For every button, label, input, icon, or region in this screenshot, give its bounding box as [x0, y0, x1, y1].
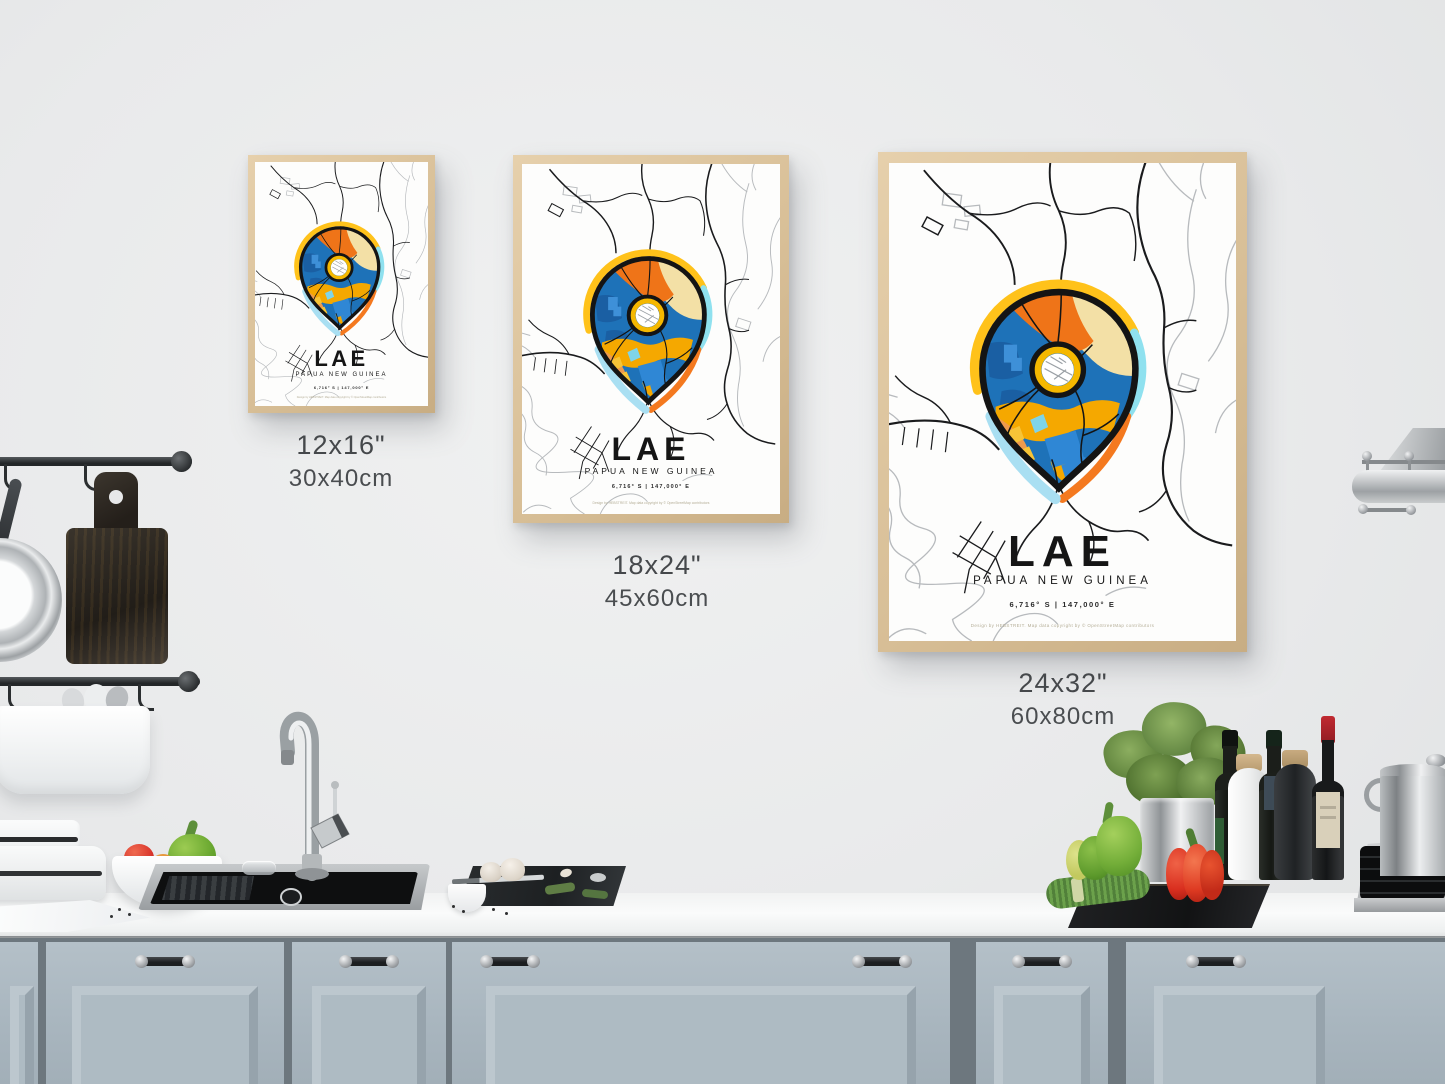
wine-label-line — [1320, 806, 1336, 809]
range-hood — [1352, 428, 1445, 520]
handle-end — [182, 955, 195, 968]
garlic-bulb — [480, 862, 502, 882]
peppercorn — [118, 908, 121, 911]
board-hole — [109, 490, 123, 504]
peppercorn — [492, 908, 495, 911]
door-panel — [486, 986, 916, 1084]
rail-ball — [1362, 451, 1372, 461]
door-panel — [994, 986, 1090, 1084]
poster-title: LAE — [889, 527, 1236, 577]
rail-ball — [1404, 451, 1414, 461]
rail-finial — [178, 671, 199, 692]
size-cm: 30x40cm — [251, 465, 431, 493]
slate-board-hole — [590, 873, 606, 882]
cabinet-handle — [137, 954, 193, 970]
rail-ball — [1406, 505, 1416, 515]
peppercorn — [128, 913, 131, 916]
garlic-bulb — [500, 858, 525, 881]
poster-coordinates: 6,716° S | 147,000° E — [255, 385, 428, 390]
size-cm: 45x60cm — [567, 585, 747, 613]
wine-label — [1316, 792, 1340, 848]
board-body — [66, 528, 168, 664]
frying-pan — [0, 538, 62, 662]
wine-bottle — [1310, 716, 1346, 880]
rail-finial — [171, 451, 192, 472]
hood-rail-lower — [1364, 508, 1412, 512]
poster-title: LAE — [255, 346, 428, 372]
handle-end — [480, 955, 493, 968]
handle-end — [1233, 955, 1246, 968]
pot-body — [1380, 776, 1445, 876]
poster-credit: Design by HEBSTREIT. Map data copyright … — [889, 623, 1236, 628]
door-panel — [1154, 986, 1325, 1084]
handle-end — [1059, 955, 1072, 968]
cabinet-handle — [341, 954, 397, 970]
soap-dish — [242, 861, 276, 875]
poster-subtitle: PAPUA NEW GUINEA — [255, 372, 428, 378]
handle-end — [1186, 955, 1199, 968]
poster-subtitle: PAPUA NEW GUINEA — [889, 575, 1236, 587]
size-inches: 12x16" — [251, 430, 431, 461]
hood-band — [1352, 470, 1445, 503]
green-pepper — [1096, 816, 1142, 876]
peppercorn — [505, 912, 508, 915]
sink-drainboard — [162, 876, 254, 900]
peppercorn — [110, 915, 113, 918]
poster-credit: Design by HEBSTREIT. Map data copyright … — [255, 396, 428, 399]
hob-front-edge — [1354, 898, 1445, 912]
poster-coordinates: 6,716° S | 147,000° E — [889, 600, 1236, 609]
poster-frame-18x24: LAE PAPUA NEW GUINEA 6,716° S | 147,000°… — [513, 155, 789, 523]
hood-rail — [1362, 460, 1445, 464]
door-panel — [72, 986, 258, 1084]
handle-end — [386, 955, 399, 968]
peppercorn — [462, 910, 465, 913]
poster-title: LAE — [522, 431, 780, 468]
poster-print-24x32: LAE PAPUA NEW GUINEA 6,716° S | 147,000°… — [889, 163, 1236, 641]
poster-print-18x24: LAE PAPUA NEW GUINEA 6,716° S | 147,000°… — [522, 164, 780, 514]
cabinet-door — [1126, 942, 1445, 1084]
cabinet-handle — [854, 954, 910, 970]
rail-ball — [1358, 504, 1368, 514]
poster-subtitle: PAPUA NEW GUINEA — [522, 466, 780, 476]
poster-print-12x16: LAE PAPUA NEW GUINEA 6,716° S | 147,000°… — [255, 162, 428, 406]
poster-coordinates: 6,716° S | 147,000° E — [522, 484, 780, 490]
handle-end — [1012, 955, 1025, 968]
faucet — [272, 686, 356, 884]
pepper-lobe — [1200, 850, 1224, 900]
poster-credit: Design by HEBSTREIT. Map data copyright … — [522, 501, 780, 505]
cooking-pot — [1380, 742, 1445, 876]
poster-frame-12x16: LAE PAPUA NEW GUINEA 6,716° S | 147,000°… — [248, 155, 435, 413]
cabinet-door — [0, 942, 38, 1084]
handle-end — [339, 955, 352, 968]
utensil-holder — [0, 706, 150, 794]
cabinet-handle — [1188, 954, 1244, 970]
handle-end — [527, 955, 540, 968]
wine-label-line — [1320, 816, 1336, 819]
peppercorn — [452, 905, 455, 908]
handle-end — [852, 955, 865, 968]
red-pepper — [1166, 842, 1222, 902]
handle-end — [135, 955, 148, 968]
size-inches: 18x24" — [567, 550, 747, 581]
kitchen-mockup-scene: LAE PAPUA NEW GUINEA 6,716° S | 147,000°… — [0, 0, 1445, 1084]
door-panel — [312, 986, 426, 1084]
cabinet-handle — [1014, 954, 1070, 970]
poster-frame-24x32: LAE PAPUA NEW GUINEA 6,716° S | 147,000°… — [878, 152, 1247, 652]
size-label-18x24: 18x24" 45x60cm — [567, 550, 747, 613]
handle-end — [899, 955, 912, 968]
plate-shadow-line — [0, 837, 78, 842]
sink-drain — [280, 888, 302, 906]
hanging-cutting-board — [66, 468, 168, 664]
door-panel — [10, 986, 34, 1084]
plate-shadow-line — [0, 871, 102, 876]
size-inches: 24x32" — [973, 668, 1153, 699]
size-label-12x16: 12x16" 30x40cm — [251, 430, 431, 493]
cabinet-handle — [482, 954, 538, 970]
